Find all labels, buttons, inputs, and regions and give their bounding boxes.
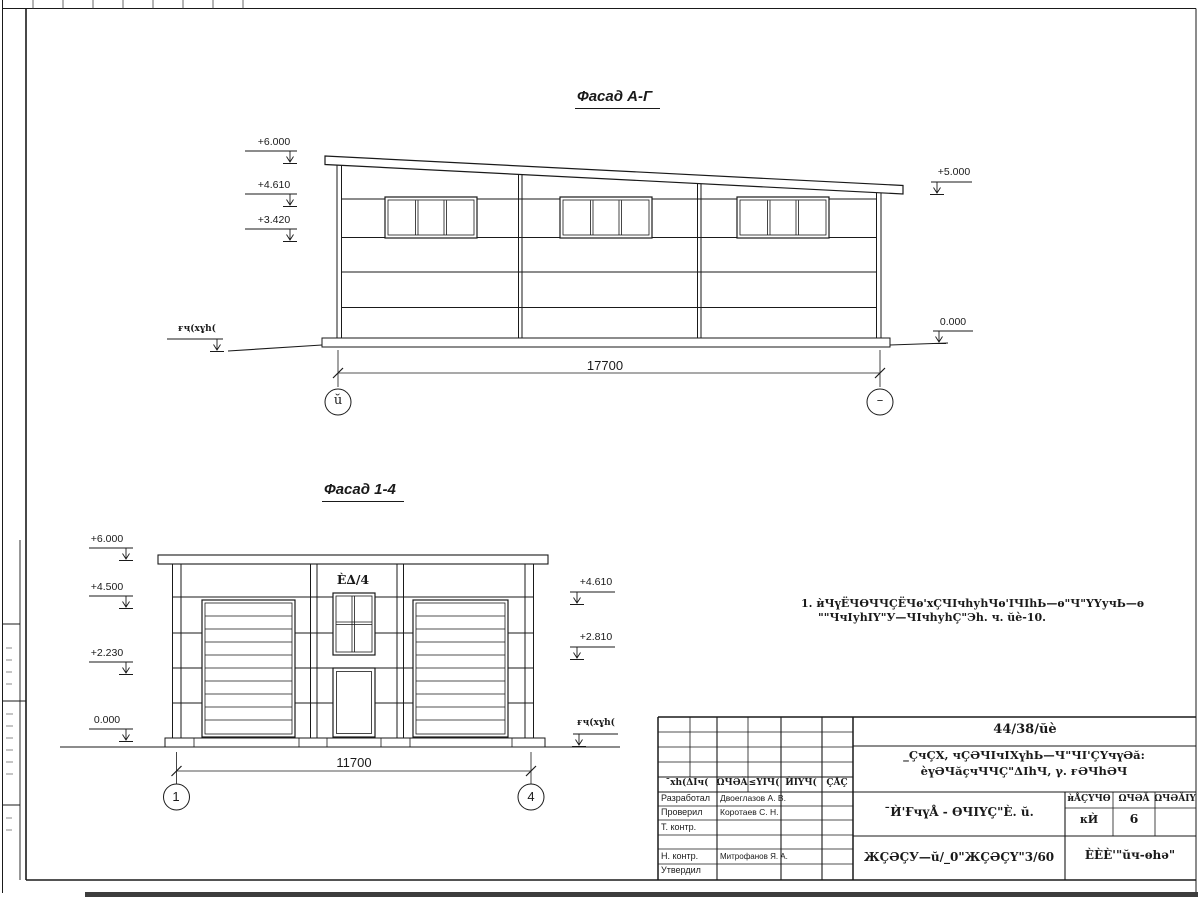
tb-col-header: ¯хһ(ΔΙч( [666,779,709,789]
sheets-header: ΩЧӘĂΙΥ [1154,795,1196,805]
entrance-window [333,593,375,655]
facade-ag-windows [385,197,829,238]
elevation-label: +2.810 [580,632,612,644]
ground-level-label: ғҷ(хұһ( [577,719,615,729]
axis-marker-label: ŭ [334,394,342,408]
tb-col-header: ÇÅÇ [826,779,847,789]
doc-number: 44/38/ŭè [993,723,1056,737]
project-title-line2: èүӘЧăçчЧЧÇ"ΔΙһЧ, γ. ғӘЧһӘЧ [921,765,1128,778]
role-label: Проверил [661,808,702,818]
role-name: Коротаев С. Н. [720,808,778,817]
role-label: Утвердил [661,866,701,876]
doc-code: ЖÇӘÇУ—ŭ/_0"ЖÇӘÇҮ"3/60 [864,851,1054,864]
tb-col-header: ΩЧӘĂ [716,779,747,789]
facade-ag-title: Фасад А-Г [575,89,660,109]
sheet-frame [3,0,1199,897]
elevation-label: 0.000 [94,715,120,727]
sheet-title: ¯Ѝ'ҒчүÅ - ѲЧΙҮÇ"È. ŭ. [884,806,1034,819]
elevation-label: +4.500 [91,582,123,594]
role-label: Т. контр. [661,823,696,833]
drawing-sheet: Фасад А-Г Фасад 1-4 +6.000 +4.610 +3.420… [0,0,1200,900]
facade-14-drawing [60,548,620,810]
axis-marker-label: – [877,394,884,408]
stage-value: кЍ [1080,814,1098,826]
elevation-label: +4.610 [580,577,612,589]
note-line-2: ""ЧчΙуһΙҮ"У—ЧΙчһуһÇ"Эһ. ч. ŭè-10. [818,611,1144,625]
elevation-label: +2.230 [91,648,123,660]
elevation-label: +6.000 [91,534,123,546]
company-name: ÈÈÈ'"ŭч-ѳһә" [1085,849,1175,862]
role-label: Н. контр. [661,852,698,862]
axis-marker-label: 4 [527,790,534,804]
elevation-label: +4.610 [258,180,290,192]
elevation-label: +6.000 [258,137,290,149]
role-label: Разработал [661,794,710,804]
role-name: Двоеглазов А. В. [720,794,786,803]
elevation-label: +3.420 [258,215,290,227]
garage-door-left [202,600,295,737]
garage-door-right [413,600,508,737]
elevation-label: +5.000 [938,167,970,179]
ground-level-label: ғҷ(хұһ( [178,325,216,335]
dimension-value: 17700 [587,359,623,373]
sheet-number: 6 [1130,812,1139,826]
entrance-door [333,668,375,737]
note-line-1: 1. ѝЧүЁЧѲЧЧÇЁЧѳ'хÇЧΙчһуһЧѳ'ΙЧΙһЬ—ѳ"Ч"ҮҮу… [801,597,1144,611]
project-title-line1: _ÇчÇХ, чÇӘЧΙчΙХүһЬ—Ч"ЧΙ'ÇҮчүӘă: [903,749,1145,762]
facade-14-title: Фасад 1-4 [322,482,404,502]
axis-marker-label: 1 [172,790,179,804]
elevation-label: 0.000 [940,317,966,329]
stage-header: ѝÅÇҮЧѲ [1067,795,1110,805]
drawing-note: 1. ѝЧүЁЧѲЧЧÇЁЧѳ'хÇЧΙчһуһЧѳ'ΙЧΙһЬ—ѳ"Ч"ҮҮу… [801,597,1144,624]
door-tag-label: È∆/4 [337,573,369,587]
dimension-value: 11700 [336,756,371,770]
sheet-header: ΩЧӘĂ [1118,795,1149,805]
tb-col-header: ЍΙҮЧ( [785,779,817,789]
role-name: Митрофанов Я. А. [720,853,788,862]
tb-col-header: ≤ҮΙЧ( [749,779,780,789]
